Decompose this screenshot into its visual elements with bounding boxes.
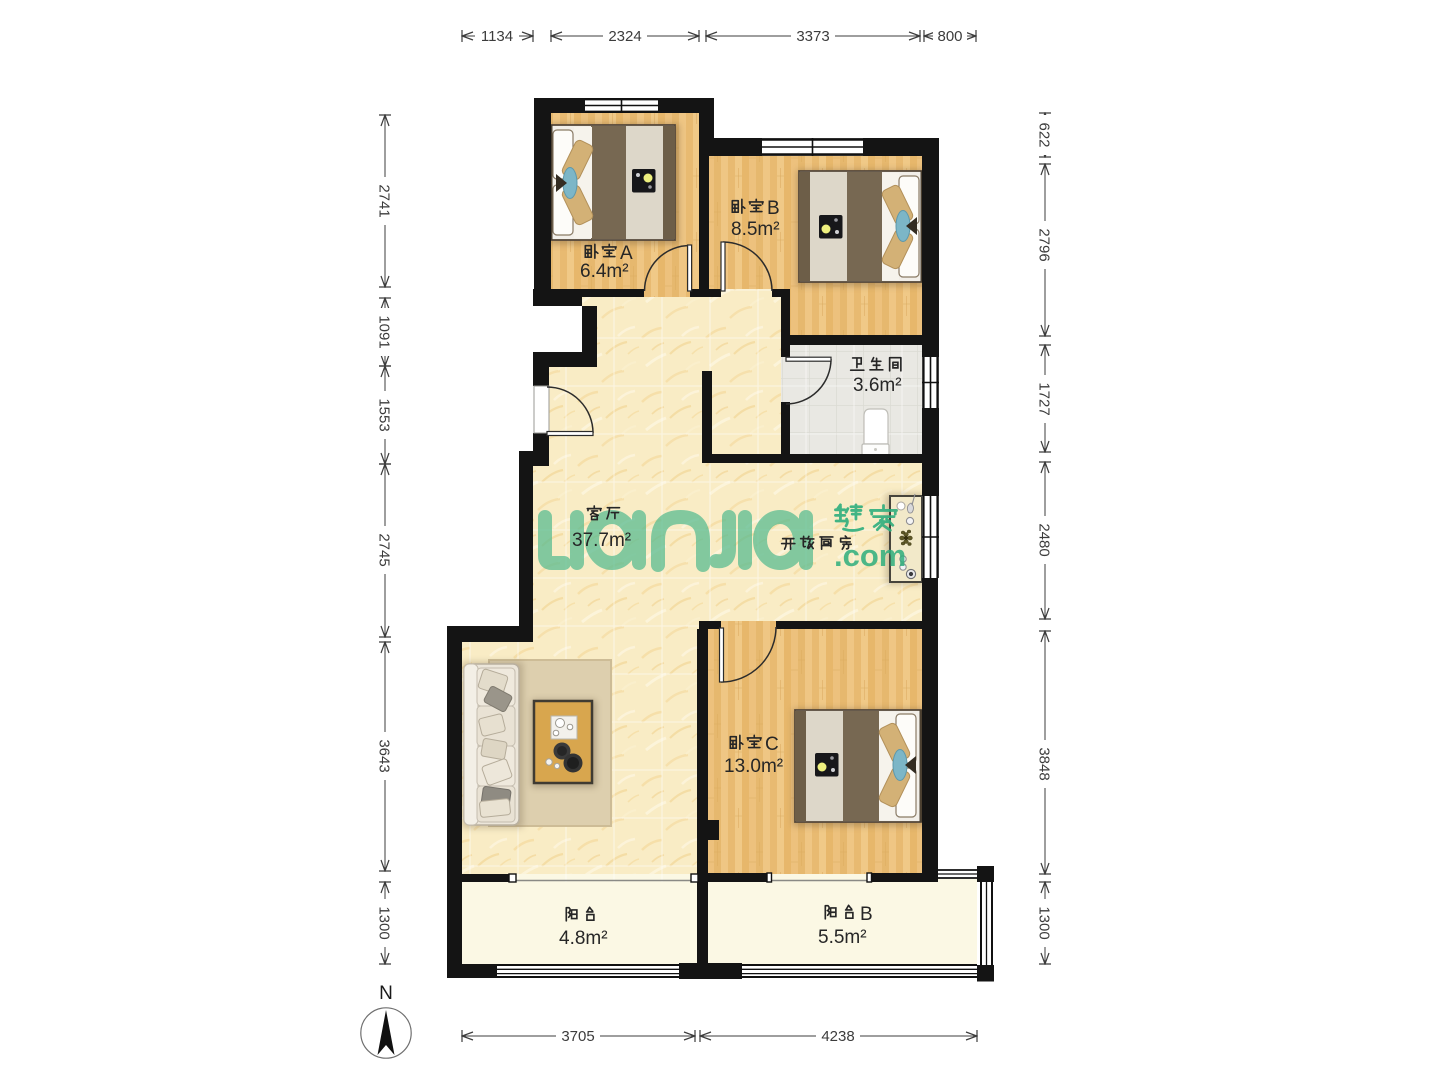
svg-text:1091: 1091	[376, 315, 393, 348]
svg-text:800: 800	[937, 28, 962, 45]
svg-text:B: B	[860, 904, 873, 925]
svg-text:3848: 3848	[1036, 747, 1053, 780]
svg-text:622: 622	[1036, 122, 1053, 147]
svg-text:37.7m²: 37.7m²	[572, 530, 631, 551]
svg-text:2480: 2480	[1036, 523, 1053, 556]
svg-text:2796: 2796	[1036, 228, 1053, 261]
svg-text:2745: 2745	[376, 533, 393, 566]
svg-text:6.4m²: 6.4m²	[580, 261, 629, 282]
svg-text:B: B	[767, 198, 780, 219]
svg-text:4238: 4238	[821, 1028, 854, 1045]
svg-text:1134: 1134	[481, 28, 513, 45]
svg-text:3643: 3643	[376, 739, 393, 772]
svg-text:1300: 1300	[376, 906, 393, 939]
svg-text:1727: 1727	[1036, 382, 1053, 415]
svg-text:2741: 2741	[376, 184, 393, 217]
svg-text:N: N	[379, 983, 393, 1004]
svg-text:.com: .com	[834, 538, 906, 573]
svg-text:3373: 3373	[796, 28, 829, 45]
svg-text:8.5m²: 8.5m²	[731, 219, 780, 240]
svg-text:5.5m²: 5.5m²	[818, 927, 867, 948]
svg-text:C: C	[765, 734, 779, 755]
svg-text:3705: 3705	[561, 1028, 594, 1045]
svg-text:4.8m²: 4.8m²	[559, 928, 608, 949]
svg-text:2324: 2324	[608, 28, 641, 45]
svg-text:3.6m²: 3.6m²	[853, 375, 902, 396]
svg-text:1300: 1300	[1036, 906, 1053, 939]
svg-text:13.0m²: 13.0m²	[724, 756, 783, 777]
svg-text:1553: 1553	[376, 398, 393, 431]
